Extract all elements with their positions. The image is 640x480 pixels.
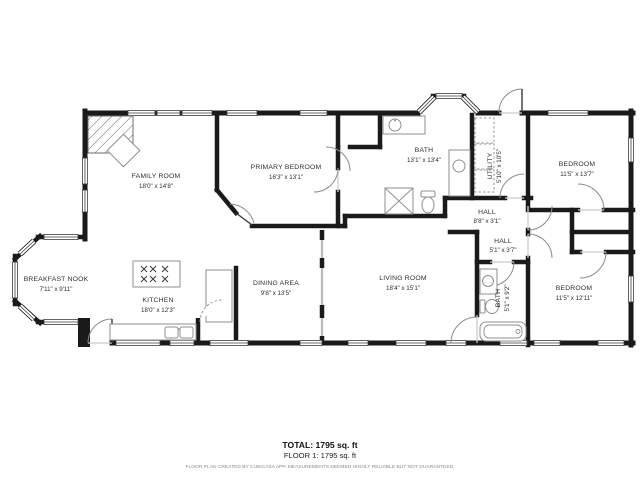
- room-name-breakfast-nook: BREAKFAST NOOK: [24, 276, 89, 283]
- floor-plan-page: FAMILY ROOM 18'0" x 14'8" PRIMARY BEDROO…: [0, 0, 640, 480]
- room-name-utility: UTILITY: [487, 152, 494, 179]
- room-name-living-room: LIVING ROOM: [379, 275, 427, 282]
- bath1-sink: [383, 116, 425, 134]
- room-dims-bedroom-2: 11'5" x 12'11": [556, 295, 592, 302]
- stove: [133, 261, 180, 287]
- room-dims-hall-2: 5'1" x 3'7": [489, 247, 516, 254]
- room-dims-utility: 5'10" x 10'5": [496, 149, 503, 183]
- room-name-hall-2: HALL: [494, 238, 512, 245]
- shower: [385, 188, 413, 214]
- room-labels: FAMILY ROOM 18'0" x 14'8" PRIMARY BEDROO…: [24, 147, 596, 314]
- room-name-dining-area: DINING AREA: [253, 280, 299, 287]
- bath1-vanity: [449, 150, 470, 196]
- room-dims-bath-2: 5'1" x 9'2": [504, 284, 511, 311]
- floor-area-text: FLOOR 1: 1795 sq. ft: [284, 451, 357, 460]
- room-name-bedroom-2: BEDROOM: [556, 285, 593, 292]
- room-name-primary-bedroom: PRIMARY BEDROOM: [251, 164, 322, 171]
- room-name-bath-2: BATH: [495, 289, 502, 307]
- floor-plan: FAMILY ROOM 18'0" x 14'8" PRIMARY BEDROO…: [0, 0, 640, 480]
- room-name-bath-1: BATH: [415, 147, 433, 154]
- room-dims-family-room: 18'0" x 14'8": [139, 183, 173, 190]
- room-dims-bath-1: 13'1" x 13'4": [407, 157, 441, 164]
- room-dims-dining-area: 9'8" x 13'5": [261, 290, 292, 297]
- disclaimer-text: FLOOR PLAN CREATED BY CUBICASA APP. MEAS…: [186, 464, 455, 470]
- room-dims-kitchen: 18'0" x 12'3": [141, 307, 175, 314]
- room-name-bedroom-1: BEDROOM: [559, 161, 596, 168]
- room-name-kitchen: KITCHEN: [142, 297, 173, 304]
- room-dims-hall-1: 8'8" x 3'1": [473, 218, 500, 225]
- room-dims-primary-bedroom: 16'3" x 13'1": [269, 174, 303, 181]
- room-name-family-room: FAMILY ROOM: [132, 173, 181, 180]
- room-name-hall-1: HALL: [478, 209, 496, 216]
- room-dims-breakfast-nook: 7'11" x 9'11": [39, 286, 72, 293]
- toilet-1: [421, 191, 435, 213]
- footer: TOTAL: 1795 sq. ft FLOOR 1: 1795 sq. ft …: [186, 440, 455, 470]
- total-area-text: TOTAL: 1795 sq. ft: [282, 440, 357, 450]
- room-dims-living-room: 18'4" x 15'1": [386, 285, 420, 292]
- room-dims-bedroom-1: 11'5" x 13'7": [560, 171, 593, 178]
- bathtub: [480, 322, 526, 341]
- fireplace: [88, 116, 140, 167]
